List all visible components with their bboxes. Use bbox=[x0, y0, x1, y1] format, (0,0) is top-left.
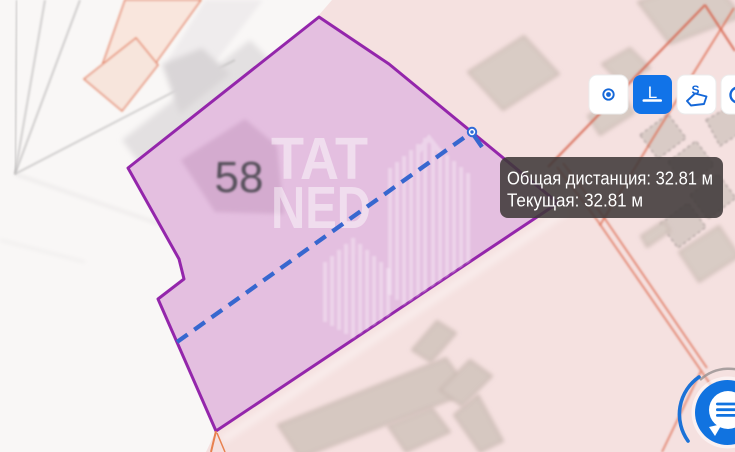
svg-text:Общая дистанция: 32.81 м: Общая дистанция: 32.81 м bbox=[507, 169, 713, 189]
svg-text:58: 58 bbox=[215, 153, 264, 202]
svg-text:NED: NED bbox=[271, 175, 371, 241]
svg-text:Текущая: 32.81 м: Текущая: 32.81 м bbox=[507, 191, 643, 211]
svg-text:L: L bbox=[648, 83, 657, 102]
